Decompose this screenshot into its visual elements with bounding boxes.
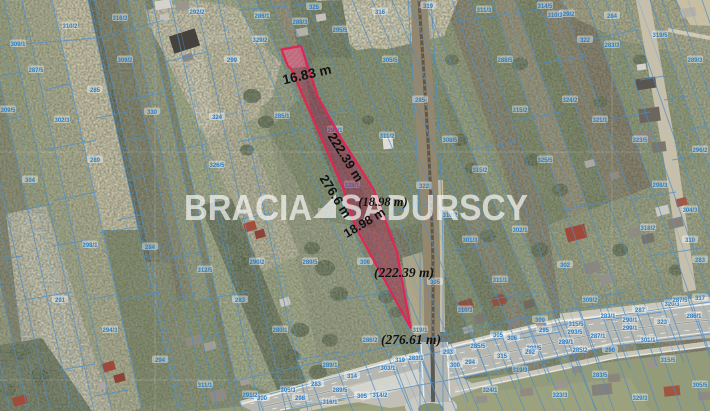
svg-text:316: 316 bbox=[375, 10, 386, 16]
svg-text:280/1: 280/1 bbox=[272, 328, 288, 334]
svg-text:315/2: 315/2 bbox=[472, 168, 488, 174]
svg-text:309/5: 309/5 bbox=[0, 108, 16, 114]
svg-text:311/1: 311/1 bbox=[493, 278, 508, 284]
svg-text:288/5: 288/5 bbox=[497, 58, 513, 64]
svg-text:301/1: 301/1 bbox=[640, 338, 656, 344]
svg-text:311/1: 311/1 bbox=[198, 383, 213, 389]
svg-text:283/1: 283/1 bbox=[408, 356, 424, 362]
svg-text:293/5: 293/5 bbox=[567, 330, 583, 336]
svg-text:305: 305 bbox=[430, 280, 441, 286]
svg-text:318/2: 318/2 bbox=[640, 226, 656, 232]
svg-text:(18.98 m): (18.98 m) bbox=[358, 195, 407, 209]
svg-text:302/1: 302/1 bbox=[512, 228, 528, 234]
svg-text:310: 310 bbox=[685, 238, 696, 244]
svg-text:289/1: 289/1 bbox=[322, 363, 338, 369]
svg-text:310/2: 310/2 bbox=[62, 24, 78, 30]
svg-text:317: 317 bbox=[695, 296, 706, 302]
svg-text:283: 283 bbox=[235, 298, 246, 304]
svg-text:(222.39 m): (222.39 m) bbox=[374, 265, 434, 280]
svg-text:283/5: 283/5 bbox=[592, 373, 608, 379]
svg-text:304: 304 bbox=[25, 178, 36, 184]
svg-text:321/1: 321/1 bbox=[592, 118, 608, 124]
svg-text:308/5: 308/5 bbox=[442, 138, 458, 144]
svg-text:316/3: 316/3 bbox=[112, 16, 128, 22]
svg-text:309/2: 309/2 bbox=[582, 298, 598, 304]
svg-text:294: 294 bbox=[465, 360, 476, 366]
svg-text:283: 283 bbox=[311, 382, 322, 388]
svg-text:305/3: 305/3 bbox=[280, 388, 296, 394]
svg-text:284: 284 bbox=[607, 14, 618, 20]
svg-text:300: 300 bbox=[450, 363, 461, 369]
svg-text:306: 306 bbox=[507, 336, 518, 342]
svg-text:311/2: 311/2 bbox=[380, 134, 395, 140]
svg-text:323/5: 323/5 bbox=[632, 138, 648, 144]
svg-text:(276.61 m): (276.61 m) bbox=[381, 332, 441, 347]
svg-text:290/1: 290/1 bbox=[622, 318, 638, 324]
svg-text:286/1: 286/1 bbox=[254, 14, 270, 20]
svg-text:310/3: 310/3 bbox=[547, 13, 563, 19]
svg-text:316/1: 316/1 bbox=[322, 400, 338, 406]
svg-text:310/3: 310/3 bbox=[457, 308, 473, 314]
svg-text:292: 292 bbox=[525, 350, 536, 356]
svg-text:323: 323 bbox=[657, 320, 668, 326]
svg-text:289/5: 289/5 bbox=[302, 260, 318, 266]
svg-text:315/5: 315/5 bbox=[660, 358, 676, 364]
svg-text:299/1: 299/1 bbox=[622, 326, 638, 332]
svg-text:285/2: 285/2 bbox=[572, 348, 588, 354]
svg-text:304/3: 304/3 bbox=[682, 208, 698, 214]
svg-text:287: 287 bbox=[635, 308, 646, 314]
svg-text:299: 299 bbox=[227, 58, 238, 64]
svg-text:305/5: 305/5 bbox=[382, 58, 398, 64]
svg-text:295: 295 bbox=[539, 328, 550, 334]
svg-text:283/1: 283/1 bbox=[600, 314, 616, 320]
svg-text:298/3: 298/3 bbox=[652, 183, 668, 189]
svg-text:298/1: 298/1 bbox=[82, 243, 98, 249]
svg-text:330: 330 bbox=[147, 110, 158, 116]
svg-text:289/5: 289/5 bbox=[332, 388, 348, 394]
svg-text:BRACIA: BRACIA bbox=[184, 187, 312, 228]
svg-text:284: 284 bbox=[145, 245, 156, 251]
svg-text:309/2: 309/2 bbox=[117, 58, 133, 64]
svg-text:323/3: 323/3 bbox=[552, 393, 568, 399]
svg-text:305: 305 bbox=[493, 333, 504, 339]
svg-text:329/3: 329/3 bbox=[632, 396, 648, 402]
svg-text:287/5: 287/5 bbox=[672, 298, 688, 304]
svg-text:290: 290 bbox=[605, 348, 616, 354]
svg-text:326/5: 326/5 bbox=[209, 163, 225, 169]
svg-text:294/3: 294/3 bbox=[102, 328, 118, 334]
svg-text:315/5: 315/5 bbox=[568, 322, 584, 328]
svg-text:292/2: 292/2 bbox=[189, 10, 205, 16]
svg-text:289/1: 289/1 bbox=[558, 340, 574, 346]
svg-text:288/3: 288/3 bbox=[292, 20, 308, 26]
svg-text:285/5: 285/5 bbox=[470, 344, 486, 350]
svg-text:325: 325 bbox=[309, 5, 320, 11]
svg-text:315/2: 315/2 bbox=[512, 108, 528, 114]
svg-text:311/3: 311/3 bbox=[477, 8, 492, 14]
svg-text:319: 319 bbox=[423, 4, 434, 10]
svg-text:295/5: 295/5 bbox=[332, 28, 348, 34]
svg-text:291/2: 291/2 bbox=[242, 393, 258, 399]
svg-text:296/2: 296/2 bbox=[692, 148, 708, 154]
svg-text:285/1: 285/1 bbox=[274, 114, 290, 120]
svg-text:290/2: 290/2 bbox=[249, 260, 265, 266]
svg-text:298: 298 bbox=[295, 396, 306, 402]
svg-text:314/5: 314/5 bbox=[537, 4, 553, 10]
svg-text:289: 289 bbox=[90, 158, 101, 164]
svg-text:324: 324 bbox=[212, 115, 223, 121]
svg-text:325/5: 325/5 bbox=[537, 158, 553, 164]
svg-text:309/1: 309/1 bbox=[10, 42, 26, 48]
svg-text:303/1: 303/1 bbox=[380, 366, 396, 372]
svg-text:283: 283 bbox=[695, 258, 706, 264]
svg-text:319: 319 bbox=[395, 358, 406, 364]
svg-text:319/3: 319/3 bbox=[512, 368, 528, 374]
svg-text:322: 322 bbox=[580, 38, 591, 44]
svg-text:309: 309 bbox=[535, 318, 546, 324]
svg-text:301/3: 301/3 bbox=[462, 238, 478, 244]
svg-text:314: 314 bbox=[347, 374, 358, 380]
svg-text:314/2: 314/2 bbox=[372, 393, 388, 399]
svg-text:302/3: 302/3 bbox=[54, 118, 70, 124]
svg-text:324/1: 324/1 bbox=[482, 388, 498, 394]
svg-text:302: 302 bbox=[560, 263, 571, 269]
svg-text:324/2: 324/2 bbox=[562, 98, 578, 104]
svg-text:305: 305 bbox=[357, 394, 368, 400]
svg-text:287/1: 287/1 bbox=[590, 334, 606, 340]
svg-text:283/3: 283/3 bbox=[604, 43, 620, 49]
svg-text:329/2: 329/2 bbox=[252, 38, 268, 44]
svg-text:286/1: 286/1 bbox=[686, 314, 702, 320]
svg-text:300: 300 bbox=[257, 396, 268, 402]
svg-text:285: 285 bbox=[90, 88, 101, 94]
svg-text:285: 285 bbox=[415, 98, 426, 104]
svg-text:294: 294 bbox=[155, 358, 166, 364]
svg-text:312/5: 312/5 bbox=[197, 268, 213, 274]
svg-text:291: 291 bbox=[55, 298, 66, 304]
svg-text:306: 306 bbox=[360, 260, 371, 266]
svg-text:286/2: 286/2 bbox=[362, 338, 378, 344]
svg-text:315: 315 bbox=[497, 354, 508, 360]
svg-text:305/5: 305/5 bbox=[692, 383, 708, 389]
svg-text:293: 293 bbox=[443, 350, 454, 356]
svg-text:289/3: 289/3 bbox=[687, 58, 703, 64]
svg-text:319/5: 319/5 bbox=[652, 33, 668, 39]
svg-text:287/5: 287/5 bbox=[28, 68, 44, 74]
